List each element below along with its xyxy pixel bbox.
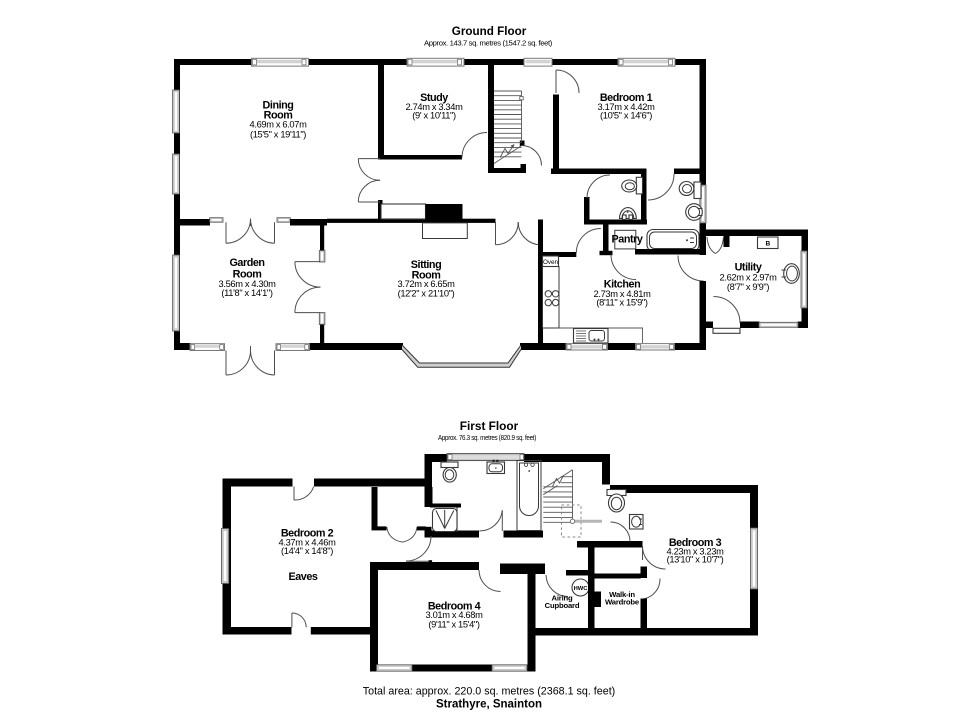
svg-text:Total area: approx. 220.0 sq.: Total area: approx. 220.0 sq. metres (23…	[363, 686, 616, 698]
svg-text:Approx. 76.3 sq. metres (820.9: Approx. 76.3 sq. metres (820.9 sq. feet)	[438, 433, 536, 442]
svg-text:Cupboard: Cupboard	[545, 601, 580, 610]
svg-text:(11'8" x 14'1"): (11'8" x 14'1")	[221, 288, 272, 298]
svg-text:First Floor: First Floor	[460, 421, 519, 433]
svg-text:B: B	[765, 241, 770, 248]
svg-text:Ground Floor: Ground Floor	[452, 26, 527, 38]
svg-text:Wardrobe: Wardrobe	[605, 598, 640, 607]
svg-text:Strathyre, Snainton: Strathyre, Snainton	[436, 699, 542, 711]
svg-text:Pantry: Pantry	[612, 234, 643, 246]
svg-text:HWC: HWC	[574, 586, 589, 592]
svg-text:(8'11" x 15'9"): (8'11" x 15'9")	[596, 298, 647, 308]
svg-text:(9' x 10'11"): (9' x 10'11")	[412, 111, 456, 121]
svg-text:Oven: Oven	[543, 259, 559, 266]
svg-text:(12'2" x 21'10"): (12'2" x 21'10")	[398, 289, 455, 299]
svg-text:Garden: Garden	[229, 257, 264, 269]
svg-text:(10'5" x 14'6"): (10'5" x 14'6")	[600, 111, 652, 121]
svg-text:(15'5" x 19'11"): (15'5" x 19'11")	[250, 129, 306, 139]
svg-text:Approx. 143.7 sq. metres (1547: Approx. 143.7 sq. metres (1547.2 sq. fee…	[424, 39, 552, 48]
svg-text:Eaves: Eaves	[289, 571, 318, 583]
svg-text:3.72m x 6.65m: 3.72m x 6.65m	[398, 279, 456, 289]
svg-text:(13'10" x 10'7"): (13'10" x 10'7")	[667, 555, 724, 565]
svg-text:2.62m x 2.97m: 2.62m x 2.97m	[720, 273, 778, 283]
svg-text:(8'7" x 9'9"): (8'7" x 9'9")	[727, 282, 770, 292]
svg-text:(9'11" x 15'4"): (9'11" x 15'4")	[428, 619, 479, 629]
svg-text:(14'4" x 14'8"): (14'4" x 14'8")	[281, 546, 333, 556]
svg-text:4.69m x 6.07m: 4.69m x 6.07m	[250, 120, 308, 130]
